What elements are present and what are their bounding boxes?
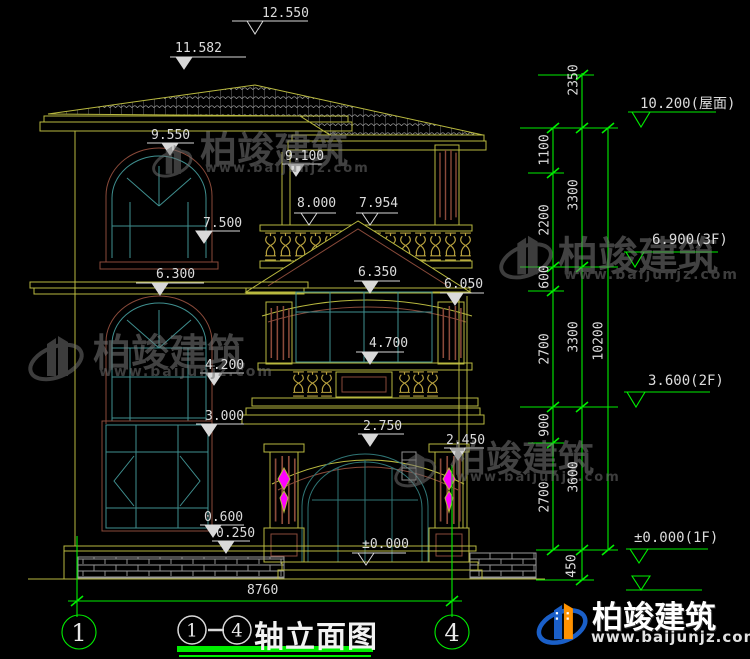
third-floor-pilaster (435, 145, 459, 225)
level-flag-symbols (624, 112, 718, 590)
elevation-label: 7.954 (359, 196, 398, 211)
elevation-label: 8.000 (297, 196, 336, 211)
elevation-label: 2.750 (363, 419, 402, 434)
overall-width-dim: 8760 (247, 583, 278, 598)
dim-segment: 600 (538, 265, 553, 288)
cad-elevation-screenshot: 柏竣建筑 www.baijunjz.com 柏竣建筑 www.baijunjz.… (0, 0, 750, 659)
elevation-label: 2.450 (446, 433, 485, 448)
elevation-label: 9.100 (285, 149, 324, 164)
elevation-label: 11.582 (175, 41, 222, 56)
title-axis-end: 4 (231, 621, 242, 642)
elevation-label: 0.600 (204, 510, 243, 525)
base-plinth (28, 546, 545, 579)
elevation-label: 6.350 (358, 265, 397, 280)
elevation-label-ground: ±0.000 (362, 537, 409, 552)
watermark-logo-icon (25, 336, 86, 386)
elevation-label: 0.250 (216, 526, 255, 541)
dim-segment: 1100 (538, 134, 553, 165)
watermark-logo-icon (392, 453, 438, 491)
elevation-label: 6.300 (156, 267, 195, 282)
dim-segment: 3300 (567, 179, 582, 210)
elevation-label: 6.050 (444, 277, 483, 292)
dim-total-height: 10200 (592, 321, 607, 360)
drawing-title: 轴立面图 (254, 612, 378, 656)
elevation-label: 3.000 (205, 409, 244, 424)
level-flag-2f: 3.600(2F) (648, 373, 724, 389)
brand-logo-icon (536, 592, 590, 652)
watermark-url: www.baijunjz.com (564, 267, 739, 283)
title-axis-start: 1 (186, 621, 197, 642)
elevation-label-roof-peak: 12.550 (262, 6, 309, 21)
level-flag-3f: 6.900(3F) (652, 232, 728, 248)
dim-segment: 2200 (538, 204, 553, 235)
axis-bubble-1-label: 1 (71, 619, 86, 647)
dim-segment: 450 (565, 554, 580, 577)
level-flag-1f: ±0.000(1F) (634, 530, 718, 546)
watermark-logo-icon (150, 145, 195, 181)
dim-segment: 900 (538, 413, 553, 436)
first-floor-window (106, 425, 208, 528)
brand-url: www.baijunjz.com (591, 628, 750, 646)
watermark-url: www.baijunjz.com (99, 364, 274, 380)
level-flag-roof: 10.200(屋面) (640, 93, 735, 113)
entrance-left-pilaster (264, 444, 304, 562)
axis-bubble-4-label: 4 (444, 619, 459, 647)
second-floor-bay-arch (262, 300, 472, 322)
dim-segment: 3600 (567, 461, 582, 492)
dim-segment: 2700 (538, 481, 553, 512)
elevation-label: 9.550 (151, 128, 190, 143)
second-floor-balcony (252, 363, 478, 406)
dim-segment: 3300 (567, 321, 582, 352)
dim-segment: 2350 (567, 64, 582, 95)
elevation-label: 7.500 (203, 216, 242, 231)
third-floor-left-window (112, 156, 206, 258)
elevation-label: 4.200 (205, 358, 244, 373)
elevation-label: 4.700 (369, 336, 408, 351)
dim-segment: 2700 (538, 333, 553, 364)
